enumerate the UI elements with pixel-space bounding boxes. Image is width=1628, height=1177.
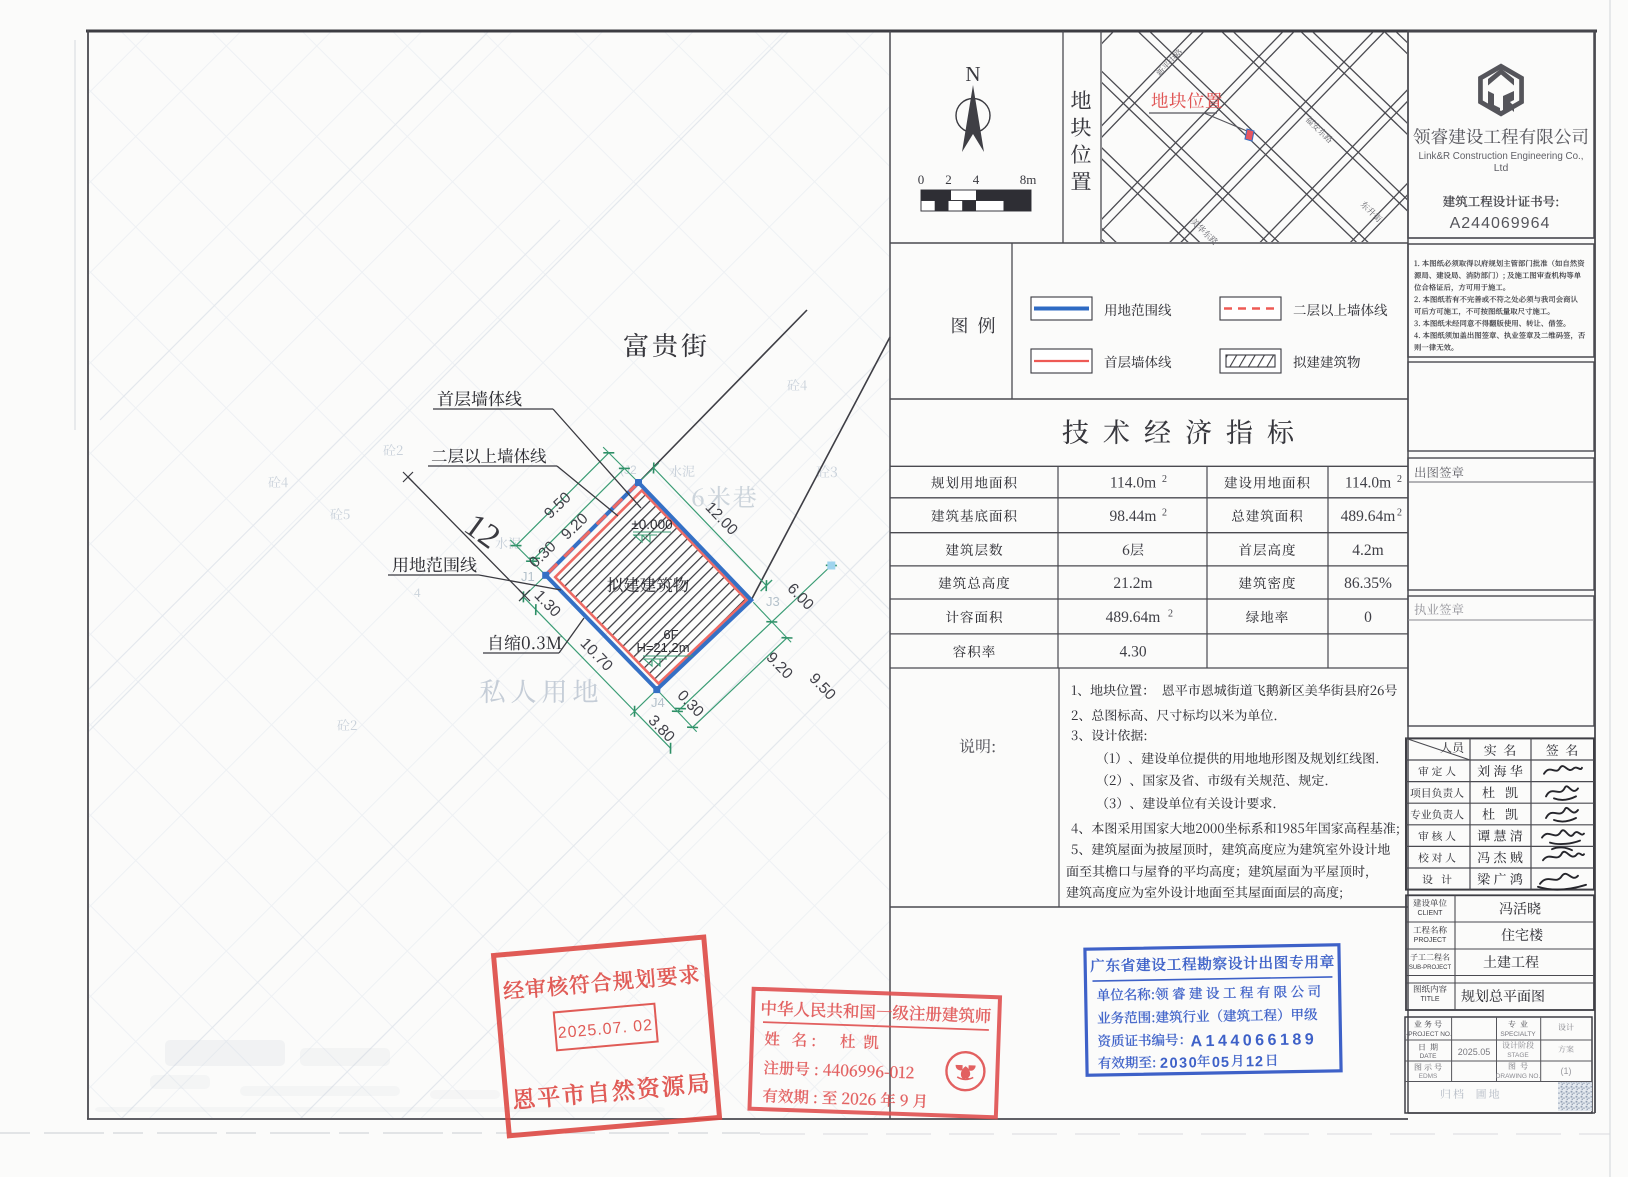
svg-text:4.2m: 4.2m [1352,542,1383,559]
svg-text:CLIENT: CLIENT [1418,910,1444,917]
svg-text:2025.05: 2025.05 [1458,1047,1491,1057]
svg-text:114.0m: 114.0m [1345,475,1391,492]
svg-text:J1: J1 [521,569,535,584]
svg-text:489.64m: 489.64m [1341,508,1396,525]
svg-text:N: N [965,62,980,86]
svg-text:(1): (1) [1561,1066,1572,1076]
svg-text:0: 0 [1364,609,1372,626]
svg-text:4: 4 [973,172,980,187]
svg-text:I-PROJECT NO.: I-PROJECT NO. [1404,1031,1452,1038]
svg-text:SPECIALTY: SPECIALTY [1500,1031,1536,1038]
svg-text:J3: J3 [766,594,780,609]
svg-text:A144066189: A144066189 [1190,1031,1317,1050]
svg-text:TITLE: TITLE [1420,996,1439,1003]
svg-text:2: 2 [945,172,952,187]
svg-text:A244069964: A244069964 [1450,215,1551,232]
svg-text:Link&R Construction Engineer: Link&R Construction Engineering Co., [1418,151,1583,162]
svg-text:2: 2 [1397,474,1402,485]
svg-text:114.0m: 114.0m [1110,475,1156,492]
svg-text:H=21.2m: H=21.2m [636,640,689,655]
svg-text:PROJECT: PROJECT [1414,937,1447,944]
svg-text:4: 4 [414,585,421,600]
svg-text:2: 2 [1168,608,1173,619]
svg-text:2030: 2030 [1160,1055,1199,1072]
svg-text:21.2m: 21.2m [1113,575,1152,592]
svg-text:05: 05 [1212,1055,1230,1071]
svg-text:98.44m: 98.44m [1110,508,1157,525]
svg-text:EDMS: EDMS [1419,1073,1438,1080]
svg-text:STAGE: STAGE [1507,1052,1529,1059]
svg-text:DRAWING NO.: DRAWING NO. [1496,1073,1541,1080]
svg-text:±0.000: ±0.000 [631,517,672,532]
svg-text:489.64m: 489.64m [1106,609,1161,626]
svg-text:2: 2 [1162,474,1167,485]
svg-text:2: 2 [1397,507,1402,518]
svg-text:0: 0 [918,172,925,187]
svg-text:12: 12 [1246,1054,1264,1070]
svg-text:SUB-PROJECT: SUB-PROJECT [1409,965,1452,971]
svg-text:Ltd: Ltd [1494,162,1509,174]
svg-text:86.35%: 86.35% [1344,575,1392,592]
svg-text:2: 2 [1162,507,1167,518]
svg-text:4.30: 4.30 [1119,643,1146,660]
svg-text:J4: J4 [651,695,665,710]
svg-text:DATE: DATE [1420,1053,1438,1060]
svg-text:8m: 8m [1020,172,1037,187]
